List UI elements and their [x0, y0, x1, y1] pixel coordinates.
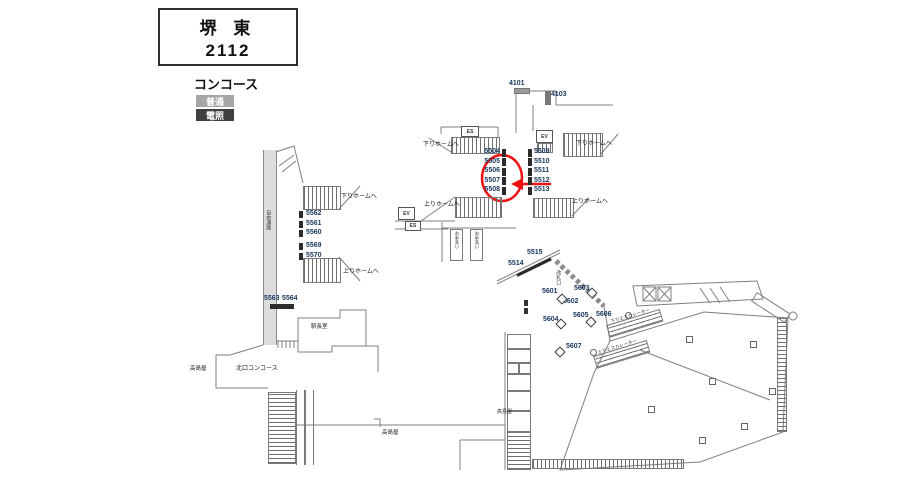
ad-bar-5563-5564	[270, 304, 294, 309]
center-right-lower-stairs	[533, 198, 574, 218]
takashimaya-label-center: 高島屋	[497, 408, 512, 415]
service-room	[507, 363, 519, 374]
service-room	[507, 334, 531, 349]
center-left-to-up-platform-label: 上りホームへ	[424, 199, 460, 208]
ad-bar-5507	[502, 177, 506, 185]
service-room	[507, 374, 531, 391]
ad-bar-4103	[545, 91, 551, 105]
ad-number: 5601	[542, 288, 558, 295]
ad-number: 5513	[534, 186, 550, 193]
ad-number: 5561	[306, 220, 322, 227]
ad-number: 5504	[482, 148, 500, 155]
legend-illuminated-badge: 電照	[196, 109, 234, 121]
free-passage-strip	[263, 150, 277, 345]
south-stairs	[507, 432, 531, 470]
ad-number: 5560	[306, 229, 322, 236]
ad-bar-5509	[528, 149, 532, 157]
ad-number: 5509	[534, 148, 550, 155]
restroom-box: お手洗い	[470, 229, 483, 261]
west-lower-stairs	[303, 258, 341, 283]
ad-number: 5562	[306, 210, 322, 217]
east-wall-hatch	[777, 318, 787, 432]
pillar	[648, 406, 655, 413]
ad-number: 4101	[509, 80, 525, 87]
north-exit-escalator	[296, 390, 305, 465]
ad-bar-5562	[299, 211, 303, 218]
ad-number: 5515	[527, 249, 543, 256]
pillar	[769, 388, 776, 395]
ad-bar-5561	[299, 221, 303, 228]
escalator-icon: ES	[461, 126, 479, 137]
pillar	[709, 378, 716, 385]
ad-bar-5512	[528, 177, 532, 185]
pillar	[699, 437, 706, 444]
station-name: 堺 東	[200, 14, 257, 39]
west-upper-stairs	[303, 186, 341, 210]
service-room	[519, 363, 531, 374]
ad-bar-5505	[502, 158, 506, 166]
ad-number: 5506	[482, 167, 500, 174]
center-left-to-down-platform-label: 下りホームへ	[423, 139, 459, 148]
elevator-icon: EV	[398, 207, 415, 220]
takashimaya-label-south: 高島屋	[382, 428, 399, 436]
takashimaya-label-west: 高島屋	[190, 364, 207, 372]
ticket-gate-label: 改札口	[555, 270, 560, 285]
pillar	[686, 336, 693, 343]
south-wall-hatch	[532, 459, 684, 469]
west-to-up-platform-label: 上りホームへ	[343, 266, 379, 275]
ad-number: 5569	[306, 242, 322, 249]
escalator-icon: ES	[405, 221, 421, 231]
ad-number: 5510	[534, 158, 550, 165]
station-map-page: 堺 東 2112 コンコース 普通 電照 自由通路 下りホームへ 5562 55…	[0, 0, 919, 491]
north-exit-escalator	[305, 390, 314, 465]
free-passage-label: 自由通路	[265, 210, 270, 230]
ad-number: 5505	[482, 158, 500, 165]
restroom-label: お手洗い	[474, 231, 479, 249]
ad-bar-5511	[528, 168, 532, 176]
ad-bar-5510	[528, 158, 532, 166]
area-label: コンコース	[158, 74, 294, 93]
center-right-to-down-platform-label: 下りホームへ	[576, 138, 612, 147]
red-arrow-head	[511, 178, 523, 190]
ad-number: 5514	[508, 260, 524, 267]
ad-number: 5606	[596, 311, 612, 318]
elevator-icon: EV	[536, 130, 553, 143]
legend-normal-badge: 普通	[196, 95, 234, 107]
ad-number: 5508	[482, 186, 500, 193]
ad-bar-5513	[528, 187, 532, 195]
ad-bar-5504	[502, 149, 506, 157]
ad-bar-5508	[502, 187, 506, 195]
restroom-box: お手洗い	[450, 229, 463, 261]
ad-bar-5569	[299, 243, 303, 250]
title-box: 堺 東 2112	[158, 8, 298, 66]
ad-number: 5564	[282, 295, 298, 302]
ad-number: 5563	[264, 295, 280, 302]
center-left-lower-stairs	[455, 197, 502, 218]
restroom-label: お手洗い	[454, 231, 459, 249]
service-room	[507, 349, 531, 363]
ad-bar-5560	[299, 230, 303, 237]
ad-number: 5605	[573, 312, 589, 319]
ad-number: 5607	[566, 343, 582, 350]
pillar	[750, 341, 757, 348]
north-exit-stairs	[268, 392, 296, 464]
ad-number: 5512	[534, 177, 550, 184]
ad-bar-4101	[514, 88, 530, 94]
ad-number: 5507	[482, 177, 500, 184]
ad-bar-5506	[502, 168, 506, 176]
station-office-label: 駅長室	[311, 322, 328, 330]
west-to-down-platform-label: 下りホームへ	[341, 191, 377, 200]
ad-number: 4103	[551, 91, 567, 98]
pillar	[741, 423, 748, 430]
north-concourse-label: 北口コンコース	[236, 363, 278, 372]
center-right-to-up-platform-label: 上りホームへ	[572, 196, 608, 205]
ad-number: 5511	[534, 167, 549, 174]
station-code: 2112	[206, 41, 251, 61]
